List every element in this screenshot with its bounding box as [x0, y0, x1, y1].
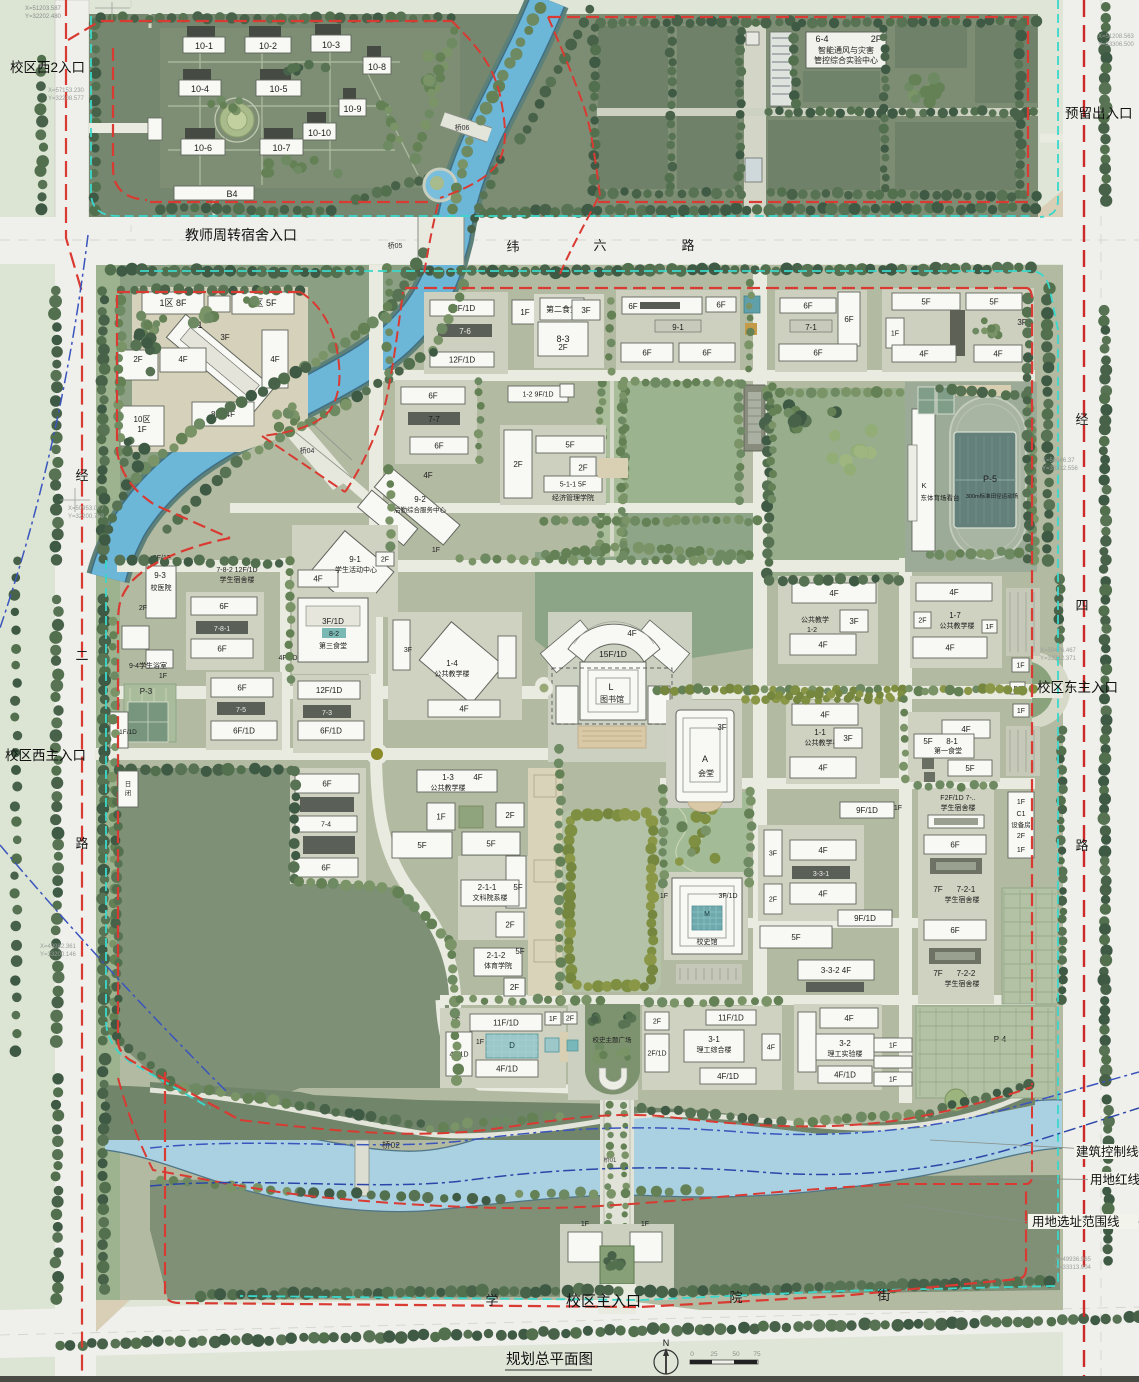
svg-text:5-1-1 5F: 5-1-1 5F [560, 482, 586, 489]
svg-text:公共教学楼: 公共教学楼 [940, 621, 975, 630]
svg-text:1F: 1F [1017, 847, 1025, 854]
svg-text:X=49982.361: X=49982.361 [40, 944, 77, 950]
svg-text:10-9: 10-9 [343, 104, 361, 114]
svg-text:图书馆: 图书馆 [600, 694, 624, 704]
svg-text:7-7: 7-7 [428, 415, 440, 424]
svg-text:10-7: 10-7 [272, 143, 290, 153]
svg-text:10-3: 10-3 [322, 40, 340, 50]
svg-text:6F: 6F [716, 300, 725, 309]
svg-text:公共教学楼: 公共教学楼 [435, 669, 470, 678]
svg-text:理工实验楼: 理工实验楼 [828, 1049, 863, 1058]
svg-text:校区东主入口: 校区东主入口 [1037, 679, 1118, 695]
svg-text:第一食堂: 第一食堂 [934, 746, 962, 755]
svg-text:2F: 2F [578, 463, 587, 472]
svg-text:3F: 3F [849, 617, 858, 626]
svg-text:6F: 6F [813, 348, 822, 357]
svg-text:10-8: 10-8 [368, 62, 386, 72]
svg-text:4F: 4F [949, 588, 958, 597]
svg-text:2F: 2F [505, 811, 514, 820]
svg-text:4F/1D: 4F/1D [496, 1064, 518, 1073]
svg-text:4F: 4F [627, 629, 636, 638]
svg-text:M: M [704, 911, 710, 918]
svg-text:1F/1D: 1F/1D [119, 729, 137, 736]
svg-text:1-3: 1-3 [442, 773, 454, 782]
svg-text:C1: C1 [1017, 811, 1026, 818]
svg-text:1-2 9F/1D: 1-2 9F/1D [522, 392, 553, 399]
svg-text:Y=32208.577: Y=32208.577 [48, 96, 85, 102]
svg-text:校区主入口: 校区主入口 [566, 1293, 641, 1310]
svg-text:X=51203.587: X=51203.587 [25, 6, 62, 12]
svg-text:7-2-1: 7-2-1 [957, 885, 976, 894]
svg-text:Y=32200.769: Y=32200.769 [68, 514, 105, 520]
svg-text:5F: 5F [417, 841, 426, 850]
svg-text:3F: 3F [404, 647, 412, 654]
svg-text:院: 院 [729, 1290, 742, 1305]
svg-text:管控综合实验中心: 管控综合实验中心 [814, 55, 878, 65]
svg-text:6F: 6F [642, 348, 651, 357]
svg-text:教师周转宿舍入口: 教师周转宿舍入口 [185, 227, 297, 243]
svg-text:5F: 5F [486, 839, 495, 848]
svg-text:X=57153.230: X=57153.230 [48, 88, 85, 94]
svg-text:1F: 1F [1017, 708, 1025, 715]
svg-text:2F/1D: 2F/1D [647, 1051, 666, 1058]
svg-text:1-7: 1-7 [949, 611, 961, 620]
svg-text:1区 8F: 1区 8F [159, 298, 187, 308]
svg-text:4F: 4F [844, 1014, 853, 1023]
svg-text:6F: 6F [803, 301, 812, 310]
svg-text:1F: 1F [137, 425, 146, 434]
svg-text:2-1-1: 2-1-1 [478, 883, 497, 892]
svg-text:4F: 4F [459, 704, 468, 713]
svg-text:会堂: 会堂 [698, 768, 714, 778]
svg-text:3-3-1: 3-3-1 [813, 871, 829, 878]
svg-text:3-1: 3-1 [708, 1035, 720, 1044]
svg-text:6F: 6F [237, 683, 246, 692]
svg-text:0: 0 [690, 1351, 694, 1358]
svg-text:9-4学生浴室: 9-4学生浴室 [129, 661, 167, 670]
svg-text:1F: 1F [985, 624, 993, 631]
svg-text:文科院系楼: 文科院系楼 [473, 893, 508, 902]
svg-text:6F: 6F [628, 302, 637, 311]
svg-text:4F: 4F [270, 355, 279, 364]
svg-text:2F: 2F [769, 897, 777, 904]
svg-text:75: 75 [753, 1351, 761, 1358]
svg-text:10-5: 10-5 [269, 84, 287, 94]
svg-text:校区西2入口: 校区西2入口 [10, 59, 85, 75]
svg-text:D: D [509, 1041, 515, 1050]
svg-text:学生宿舍楼: 学生宿舍楼 [941, 803, 976, 812]
svg-text:2F: 2F [139, 605, 147, 612]
svg-text:300m标准田径运动场: 300m标准田径运动场 [966, 492, 1019, 500]
svg-text:2F: 2F [513, 460, 522, 469]
svg-text:3-2: 3-2 [839, 1039, 851, 1048]
svg-text:桥02: 桥02 [382, 1140, 400, 1150]
svg-text:6-4: 6-4 [815, 34, 828, 44]
svg-text:3-3-2 4F: 3-3-2 4F [821, 966, 851, 975]
svg-text:4F: 4F [818, 846, 827, 855]
svg-text:2F: 2F [1017, 833, 1025, 840]
svg-text:4F/1D: 4F/1D [834, 1070, 856, 1079]
svg-text:4F: 4F [919, 349, 928, 358]
svg-text:第三食堂: 第三食堂 [319, 641, 347, 650]
svg-text:5F: 5F [565, 440, 574, 449]
svg-text:7-8-1: 7-8-1 [214, 626, 230, 633]
svg-text:7-8-2 12F/1D: 7-8-2 12F/1D [216, 567, 257, 574]
svg-text:1F: 1F [549, 1016, 557, 1023]
svg-text:二: 二 [75, 648, 88, 663]
svg-text:6F: 6F [321, 863, 330, 872]
svg-text:规划总平面图: 规划总平面图 [506, 1351, 593, 1368]
svg-text:桥05: 桥05 [388, 241, 403, 250]
svg-text:1F: 1F [641, 1221, 649, 1228]
svg-text:Y=33312.556: Y=33312.556 [1042, 466, 1079, 472]
svg-text:1F: 1F [1017, 799, 1025, 806]
svg-text:5F: 5F [923, 737, 932, 746]
svg-text:4F/1D: 4F/1D [717, 1072, 739, 1081]
svg-text:X=51208.563: X=51208.563 [1098, 34, 1135, 40]
svg-text:1F: 1F [432, 547, 440, 554]
svg-text:7-6: 7-6 [459, 327, 471, 336]
svg-text:7-1: 7-1 [805, 323, 817, 332]
svg-text:经: 经 [75, 468, 88, 483]
svg-text:P-5: P-5 [983, 474, 997, 484]
svg-text:8-2: 8-2 [329, 631, 339, 638]
svg-text:3F/1D: 3F/1D [718, 893, 737, 900]
svg-text:1F: 1F [476, 1039, 484, 1046]
svg-text:Y=32202.480: Y=32202.480 [25, 14, 62, 20]
svg-text:4F: 4F [818, 640, 827, 649]
svg-text:路: 路 [75, 836, 88, 851]
svg-text:10-1: 10-1 [195, 41, 213, 51]
svg-text:9-3: 9-3 [154, 571, 166, 580]
svg-text:15F/1D: 15F/1D [599, 649, 627, 659]
svg-text:1-4: 1-4 [446, 659, 458, 668]
svg-text:4F: 4F [961, 725, 970, 734]
svg-text:10区: 10区 [134, 415, 151, 424]
svg-text:理工综合楼: 理工综合楼 [697, 1045, 732, 1054]
svg-text:8-1: 8-1 [946, 737, 958, 746]
svg-text:1F: 1F [660, 893, 668, 900]
svg-text:路: 路 [1075, 838, 1088, 853]
svg-text:2F: 2F [653, 1019, 661, 1026]
svg-text:7-3: 7-3 [322, 710, 332, 717]
svg-text:X=49936.965: X=49936.965 [1055, 1257, 1092, 1263]
svg-text:6F: 6F [702, 348, 711, 357]
svg-text:1-2: 1-2 [807, 627, 817, 634]
svg-text:体育学院: 体育学院 [484, 961, 512, 970]
svg-text:2F: 2F [510, 983, 519, 992]
svg-text:后勤综合服务中心: 后勤综合服务中心 [394, 505, 447, 514]
svg-text:校史馆: 校史馆 [697, 937, 718, 946]
svg-text:用地选址范围线: 用地选址范围线 [1032, 1215, 1120, 1229]
svg-text:2F: 2F [558, 343, 567, 352]
svg-text:5F: 5F [921, 297, 930, 306]
svg-text:1-1: 1-1 [814, 728, 826, 737]
svg-text:1F: 1F [581, 1221, 589, 1228]
svg-text:6F: 6F [219, 602, 228, 611]
svg-text:2F: 2F [381, 557, 389, 564]
svg-text:5F: 5F [965, 764, 974, 773]
svg-text:经: 经 [1075, 412, 1088, 427]
svg-text:4F: 4F [945, 643, 954, 652]
svg-text:9-1: 9-1 [349, 555, 361, 564]
svg-text:5F: 5F [515, 947, 524, 956]
svg-text:3F: 3F [581, 306, 590, 315]
svg-text:日: 日 [125, 780, 132, 788]
svg-text:9-1: 9-1 [672, 323, 684, 332]
svg-text:9-2: 9-2 [414, 495, 426, 504]
svg-text:经济管理学院: 经济管理学院 [552, 493, 594, 502]
svg-text:9F/1D: 9F/1D [856, 806, 878, 815]
svg-text:校区西主入口: 校区西主入口 [5, 747, 86, 763]
svg-text:路: 路 [681, 238, 694, 253]
svg-text:Y=33306.500: Y=33306.500 [1098, 42, 1135, 48]
svg-text:设备房: 设备房 [1011, 820, 1031, 829]
svg-text:1F: 1F [520, 308, 529, 317]
svg-text:10-2: 10-2 [259, 41, 277, 51]
svg-text:2F: 2F [918, 618, 926, 625]
svg-text:3F: 3F [220, 333, 229, 342]
svg-text:4F: 4F [313, 574, 322, 583]
svg-text:25: 25 [710, 1351, 718, 1358]
svg-text:4F: 4F [818, 763, 827, 772]
svg-text:六: 六 [593, 238, 606, 253]
svg-text:B4: B4 [226, 189, 237, 199]
svg-text:4F: 4F [178, 355, 187, 364]
svg-text:3F: 3F [843, 734, 852, 743]
svg-text:7-2-2: 7-2-2 [957, 969, 976, 978]
svg-text:1F: 1F [159, 673, 167, 680]
svg-text:12F/1D: 12F/1D [316, 686, 342, 695]
svg-text:X=50953.077: X=50953.077 [68, 506, 105, 512]
svg-text:6F: 6F [428, 391, 437, 400]
svg-text:12F/1D: 12F/1D [449, 355, 475, 364]
svg-text:5F: 5F [513, 883, 522, 892]
svg-text:学生宿舍楼: 学生宿舍楼 [220, 575, 255, 584]
svg-text:6F: 6F [434, 441, 443, 450]
svg-text:A: A [702, 754, 708, 764]
svg-text:P-3: P-3 [140, 687, 153, 696]
svg-text:N: N [663, 1338, 670, 1348]
svg-text:学生宿舍楼: 学生宿舍楼 [945, 895, 980, 904]
svg-text:1F: 1F [436, 812, 445, 821]
svg-text:3F: 3F [717, 723, 726, 732]
svg-text:4F: 4F [423, 471, 432, 480]
svg-text:4F: 4F [993, 349, 1002, 358]
svg-text:5F: 5F [791, 933, 800, 942]
svg-text:1F: 1F [889, 1043, 897, 1050]
svg-text:10-4: 10-4 [191, 84, 209, 94]
svg-text:2-1-2: 2-1-2 [487, 951, 506, 960]
svg-text:7-4: 7-4 [321, 822, 331, 829]
svg-text:1F: 1F [1016, 663, 1024, 670]
svg-text:桥04: 桥04 [300, 446, 315, 455]
svg-text:10-10: 10-10 [308, 128, 331, 138]
svg-text:公共教学: 公共教学 [801, 615, 829, 624]
svg-text:6F/1D: 6F/1D [320, 726, 342, 735]
svg-text:11F/1D: 11F/1D [493, 1018, 519, 1027]
svg-text:K: K [921, 481, 926, 490]
svg-text:智能通风与灾害: 智能通风与灾害 [818, 45, 874, 55]
svg-text:4F: 4F [820, 710, 829, 719]
svg-text:6F: 6F [217, 644, 226, 653]
svg-text:50: 50 [732, 1351, 740, 1358]
svg-text:学生活动中心: 学生活动中心 [335, 565, 377, 574]
svg-text:1F: 1F [891, 331, 899, 338]
svg-text:2F: 2F [505, 920, 514, 929]
svg-text:预留出入口: 预留出入口 [1065, 106, 1133, 121]
svg-text:1F: 1F [889, 1077, 897, 1084]
svg-text:校史主题广场: 校史主题广场 [593, 1035, 633, 1044]
svg-text:四: 四 [1075, 598, 1088, 613]
svg-text:F2F/1D 7-..: F2F/1D 7-.. [940, 795, 975, 802]
svg-text:用地红线: 用地红线 [1090, 1172, 1139, 1187]
svg-text:Y=33312.371: Y=33312.371 [1040, 656, 1077, 662]
svg-text:7F: 7F [933, 969, 942, 978]
svg-text:4F: 4F [473, 773, 482, 782]
svg-text:6F/1D: 6F/1D [233, 726, 255, 735]
svg-text:X=50476.467: X=50476.467 [1040, 648, 1077, 654]
svg-text:东体育场看台: 东体育场看台 [921, 493, 960, 502]
svg-text:7F: 7F [933, 885, 942, 894]
svg-text:6F: 6F [844, 315, 853, 324]
svg-text:Y=33313.904: Y=33313.904 [1055, 1265, 1092, 1271]
svg-text:学生宿舍楼: 学生宿舍楼 [945, 979, 980, 988]
svg-text:闭: 闭 [125, 789, 132, 797]
svg-text:1F: 1F [894, 805, 902, 812]
svg-text:6F: 6F [322, 779, 331, 788]
svg-text:L: L [608, 682, 613, 692]
svg-text:10-6: 10-6 [194, 143, 212, 153]
svg-text:7-5: 7-5 [236, 707, 246, 714]
svg-text:建筑控制线: 建筑控制线 [1076, 1144, 1139, 1159]
svg-text:4F: 4F [818, 889, 827, 898]
svg-text:5F: 5F [989, 297, 998, 306]
svg-text:2F: 2F [566, 1016, 574, 1023]
svg-text:4F: 4F [767, 1045, 775, 1052]
svg-text:街: 街 [877, 1288, 890, 1303]
svg-text:X=50646.37: X=50646.37 [1042, 458, 1075, 464]
svg-text:6F: 6F [950, 926, 959, 935]
svg-text:2F: 2F [133, 355, 142, 364]
svg-text:学: 学 [485, 1293, 498, 1308]
svg-text:纬: 纬 [506, 239, 519, 254]
svg-text:4F: 4F [829, 589, 838, 598]
svg-text:3F: 3F [769, 851, 777, 858]
svg-text:3F/1D: 3F/1D [322, 617, 344, 626]
svg-text:9F/1D: 9F/1D [854, 914, 876, 923]
svg-text:Y=33200.146: Y=33200.146 [40, 952, 77, 958]
svg-text:6F: 6F [950, 840, 959, 849]
svg-text:桥06: 桥06 [455, 123, 470, 132]
svg-text:校医院: 校医院 [151, 583, 172, 592]
svg-text:11F/1D: 11F/1D [718, 1013, 744, 1022]
svg-text:公共教学楼: 公共教学楼 [431, 783, 466, 792]
